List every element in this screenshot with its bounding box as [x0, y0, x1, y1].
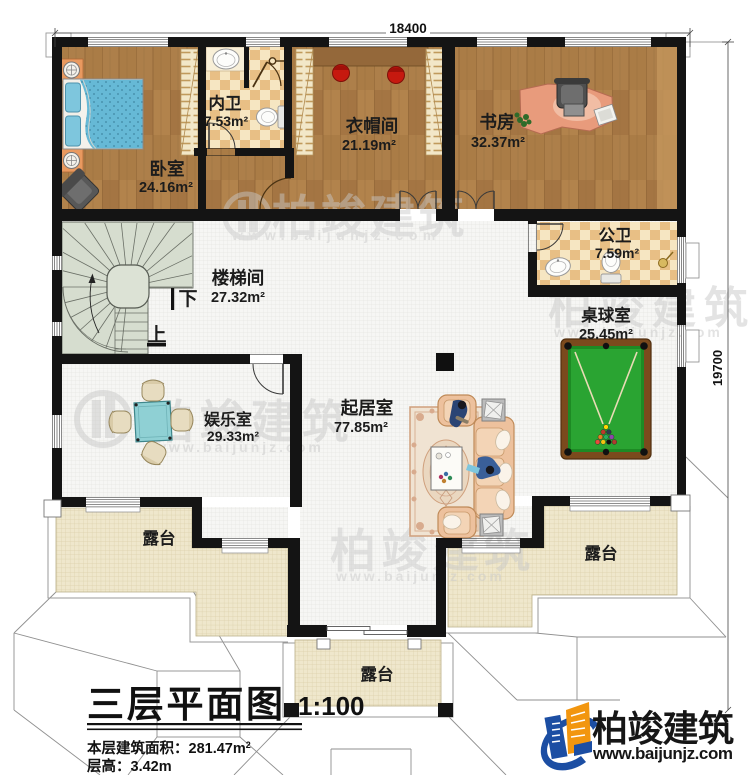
- svg-text:7.53m²: 7.53m²: [204, 113, 249, 129]
- svg-text:24.16m²: 24.16m²: [139, 180, 193, 196]
- svg-text:娱乐室: 娱乐室: [204, 410, 252, 429]
- svg-text:起居室: 起居室: [340, 398, 394, 418]
- svg-text:卧室: 卧室: [150, 159, 185, 179]
- svg-text:下: 下: [178, 289, 197, 310]
- svg-text:书房: 书房: [480, 112, 515, 132]
- svg-text:77.85m²: 77.85m²: [334, 420, 388, 436]
- svg-text:19700: 19700: [710, 350, 725, 386]
- svg-text:桌球室: 桌球室: [581, 305, 631, 325]
- svg-text:www.baijunjz.com: www.baijunjz.com: [231, 227, 441, 243]
- svg-text:32.37m²: 32.37m²: [471, 135, 525, 151]
- svg-text:楼梯间: 楼梯间: [212, 268, 265, 288]
- svg-text:内卫: 内卫: [209, 93, 242, 113]
- svg-text:三层平面图: 三层平面图: [87, 684, 283, 725]
- svg-text:柏竣建筑: 柏竣建筑: [592, 708, 734, 749]
- svg-text:27.32m²: 27.32m²: [211, 290, 265, 306]
- svg-text:1:100: 1:100: [298, 691, 365, 721]
- svg-text:29.33m²: 29.33m²: [207, 428, 259, 444]
- svg-text:25.45m²: 25.45m²: [579, 327, 633, 343]
- svg-text:21.19m²: 21.19m²: [342, 138, 396, 154]
- svg-text:衣帽间: 衣帽间: [346, 116, 399, 136]
- svg-text:7.59m²: 7.59m²: [595, 245, 640, 261]
- svg-text:露台: 露台: [361, 664, 394, 684]
- svg-text:www.baijunjz.com: www.baijunjz.com: [592, 744, 733, 763]
- svg-text:露台: 露台: [143, 528, 176, 548]
- svg-text:层高：3.42m: 层高：3.42m: [87, 757, 172, 775]
- svg-text:18400: 18400: [389, 21, 427, 36]
- svg-text:公卫: 公卫: [599, 226, 632, 245]
- svg-text:本层建筑面积：281.47m2: 本层建筑面积：281.47m2: [87, 739, 251, 757]
- svg-text:上: 上: [147, 324, 166, 346]
- svg-text:www.baijunjz.com: www.baijunjz.com: [335, 568, 505, 584]
- svg-text:露台: 露台: [585, 543, 618, 563]
